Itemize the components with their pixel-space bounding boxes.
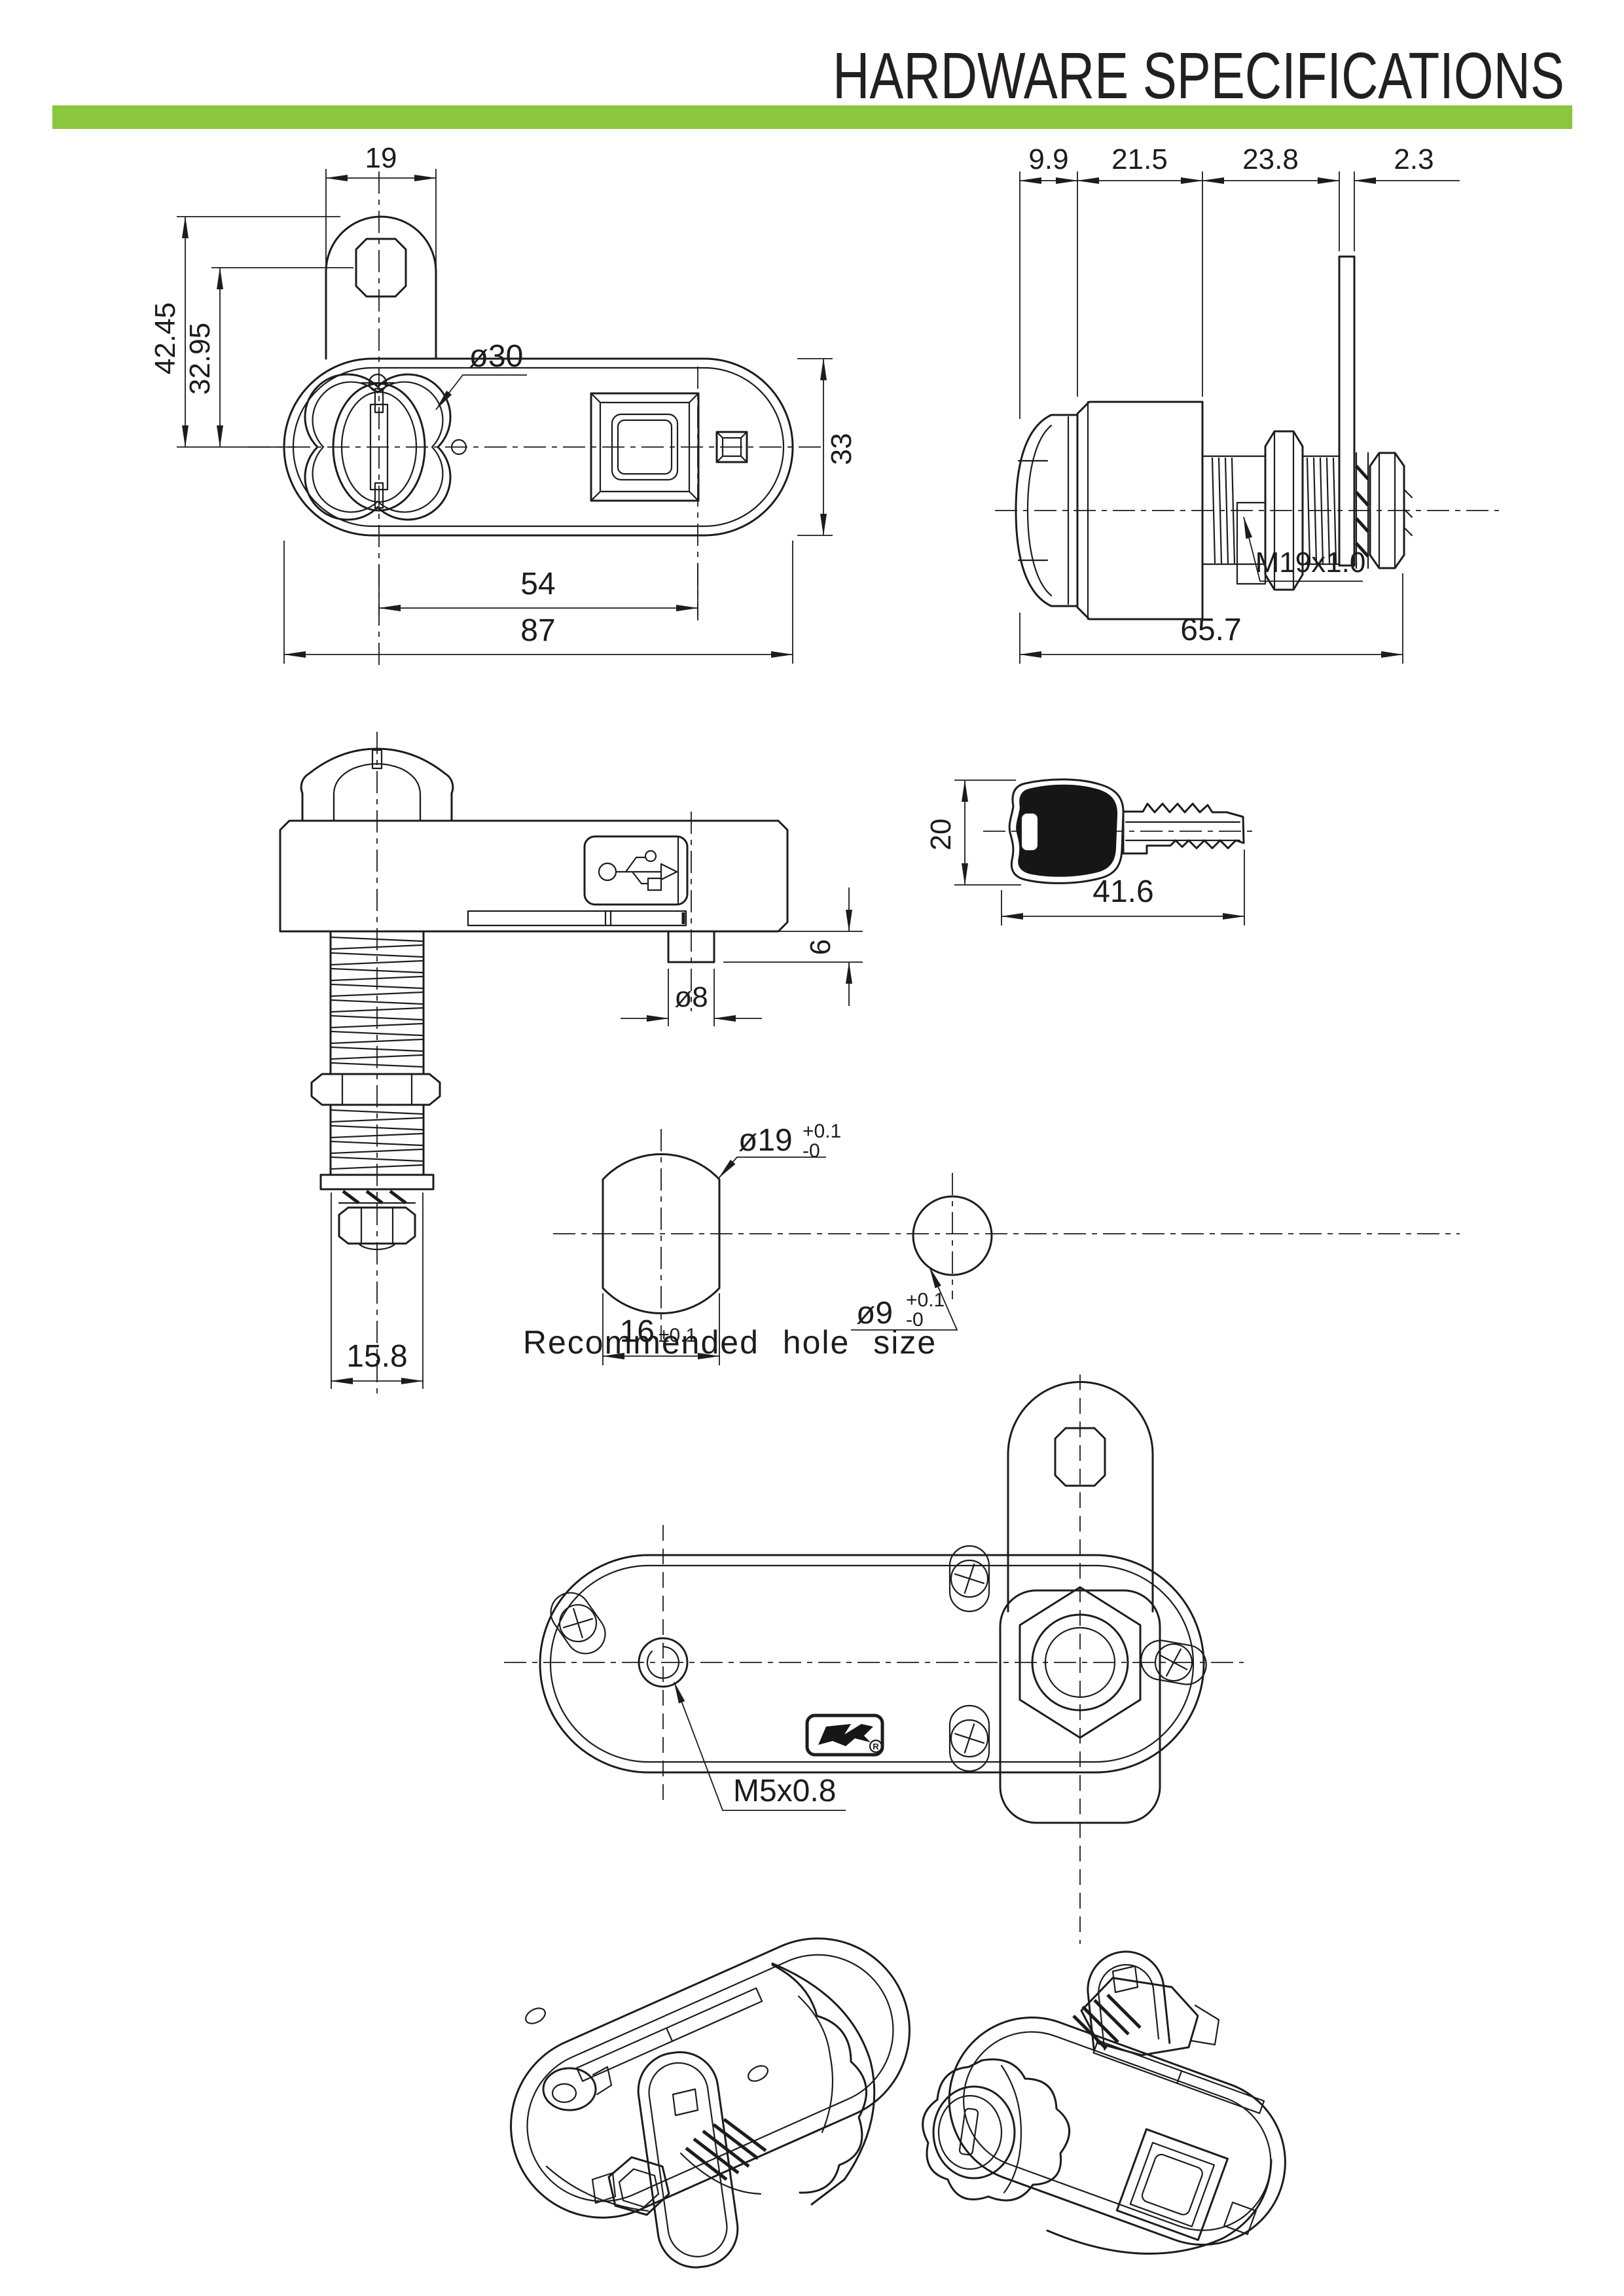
dim-body-depth: 21.5	[1111, 143, 1168, 175]
usb-icon	[599, 851, 677, 890]
front-dimensions: 19 42.45 32.95 ø30 33 54 87	[149, 142, 857, 664]
dim-main-hole-tol-minus: -0	[803, 1140, 820, 1162]
back-dimensions: M5x0.8	[674, 1682, 846, 1810]
dim-small-hole-tol-plus: +0.1	[906, 1289, 945, 1311]
brand-logo: R	[807, 1715, 882, 1755]
back-view: R M5x0.8	[504, 1374, 1244, 1944]
dim-total-length: 65.7	[1180, 613, 1241, 647]
key-view: 20 41.6	[925, 780, 1258, 925]
dim-back-screw-spec: M5x0.8	[733, 1774, 836, 1808]
dim-body-width: 87	[520, 613, 555, 648]
hole-size-view: ø19 +0.1 -0 16 ±0.1 ø9 +0.1 -0 Recommend…	[523, 1121, 1460, 1365]
dim-nut-width: 15.8	[346, 1339, 407, 1374]
thread-tip	[1404, 490, 1412, 535]
accent-bar	[52, 105, 1572, 129]
isometric-back-view	[482, 1909, 939, 2272]
dim-key-head-height: 20	[925, 819, 957, 851]
dim-tab-dia: ø8	[674, 981, 708, 1013]
key-blade	[1123, 804, 1244, 853]
dim-cam-thickness: 2.3	[1394, 143, 1434, 175]
registered-mark: R	[873, 1742, 879, 1751]
isometric-front-view	[923, 1948, 1308, 2268]
dim-knob-depth: 9.9	[1028, 143, 1068, 175]
dim-hole-height: 32.95	[184, 323, 216, 395]
page-header: HARDWARE SPECIFICATIONS	[52, 40, 1572, 129]
side-dimensions: 9.9 21.5 23.8 2.3 M19x1.0 65.7	[1020, 143, 1460, 664]
dim-body-height: 33	[825, 433, 857, 465]
front-view: 19 42.45 32.95 ø30 33 54 87	[149, 142, 857, 668]
bottom-view: 15.8 ø8 6	[280, 732, 863, 1394]
dim-main-hole-tol-plus: +0.1	[803, 1121, 841, 1142]
dim-rosette-dia: ø30	[469, 339, 524, 374]
dim-main-hole-dia: ø19	[738, 1123, 793, 1158]
hardware-spec-sheet: HARDWARE SPECIFICATIONS	[0, 0, 1624, 2296]
dim-key-to-square: 54	[520, 567, 555, 601]
dim-thread-length: 23.8	[1242, 143, 1299, 175]
dim-total-height: 42.45	[149, 302, 181, 374]
key-head-hole	[1021, 813, 1038, 851]
dim-key-length: 41.6	[1092, 874, 1153, 909]
spec-drawing-canvas: HARDWARE SPECIFICATIONS	[0, 0, 1624, 2296]
dim-thread-spec: M19x1.0	[1255, 547, 1366, 579]
dim-tab-height: 6	[804, 939, 837, 955]
hole-size-caption: Recommended hole size	[523, 1324, 937, 1361]
page-title: HARDWARE SPECIFICATIONS	[833, 40, 1564, 113]
dim-cam-width: 19	[365, 142, 397, 174]
side-view: 9.9 21.5 23.8 2.3 M19x1.0 65.7	[995, 143, 1499, 664]
usb-label-plate	[585, 836, 687, 905]
